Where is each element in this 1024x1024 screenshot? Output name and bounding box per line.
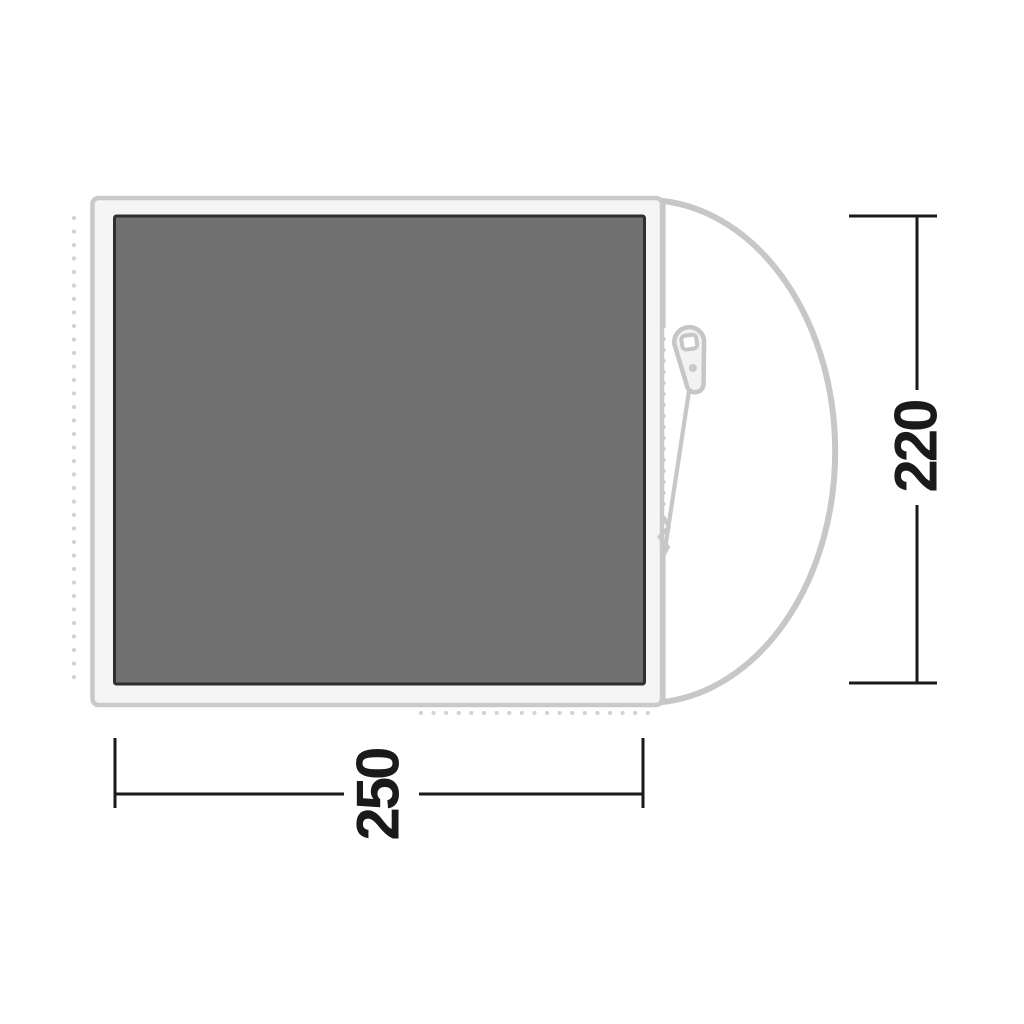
tent-footprint-diagram: 250 220 [0,0,1024,1024]
height-dimension-label: 220 [883,401,950,493]
door-arc [663,201,835,702]
width-dimension: 250 [115,738,643,841]
floor-area [115,216,645,684]
height-dimension: 220 [849,216,950,683]
width-dimension-label: 250 [345,749,412,841]
zipper-cord [665,391,689,549]
zipper-pull-icon [672,325,711,394]
